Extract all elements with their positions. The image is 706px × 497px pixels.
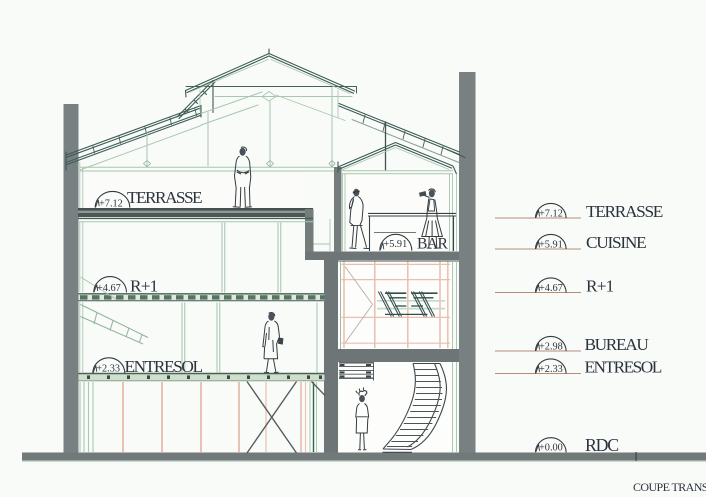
svg-text:ENTRESOL: ENTRESOL xyxy=(125,357,203,376)
svg-text:ENTRESOL: ENTRESOL xyxy=(585,357,662,376)
svg-text:R+1: R+1 xyxy=(130,276,158,295)
svg-text:TERRASSE: TERRASSE xyxy=(127,188,202,207)
svg-text:+7.12: +7.12 xyxy=(99,198,123,209)
svg-text:+4.67: +4.67 xyxy=(539,283,563,294)
svg-text:RDC: RDC xyxy=(585,435,618,455)
svg-text:TERRASSE: TERRASSE xyxy=(586,202,663,221)
svg-text:+2.33: +2.33 xyxy=(539,364,563,375)
svg-text:+2.98: +2.98 xyxy=(539,341,563,352)
svg-text:CUISINE: CUISINE xyxy=(586,233,646,252)
svg-text:COUPE TRANSVERSALE: COUPE TRANSVERSALE xyxy=(633,480,706,494)
svg-text:+7.12: +7.12 xyxy=(539,208,563,219)
svg-text:+4.67: +4.67 xyxy=(97,283,121,294)
svg-text:R+1: R+1 xyxy=(586,276,614,295)
svg-text:+2.33: +2.33 xyxy=(96,364,120,375)
svg-text:+0.00: +0.00 xyxy=(539,443,563,454)
svg-text:BUREAU: BUREAU xyxy=(585,335,650,354)
svg-text:+5.91: +5.91 xyxy=(539,239,563,250)
svg-text:BAR: BAR xyxy=(417,236,448,253)
svg-text:+5.91: +5.91 xyxy=(383,239,407,250)
